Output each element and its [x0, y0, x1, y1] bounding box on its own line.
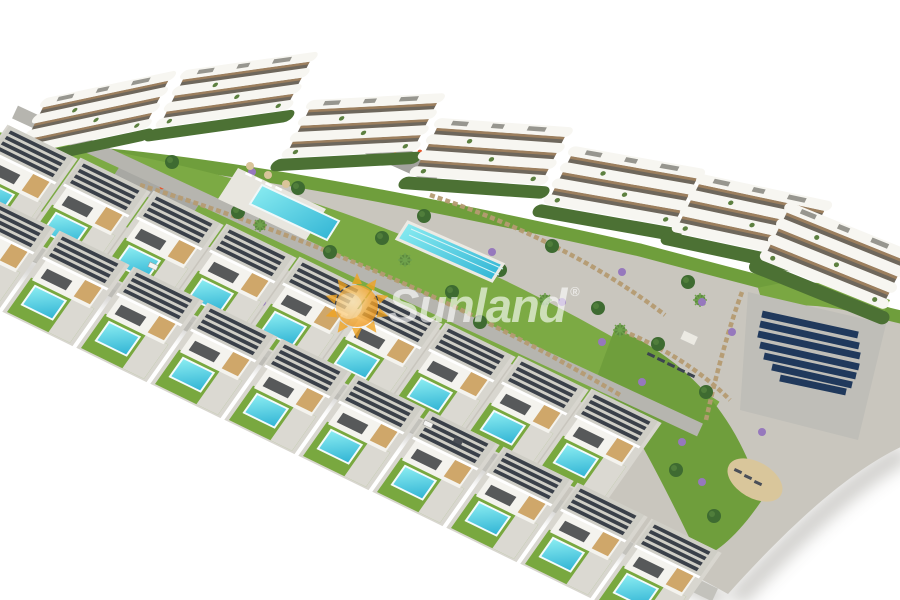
- registered-mark: ®: [570, 284, 580, 299]
- aerial-render: Sunland ®: [0, 0, 900, 600]
- apartment-block: [142, 50, 326, 142]
- render-stage: Sunland ®: [0, 0, 900, 600]
- watermark-text: Sunland: [388, 279, 569, 332]
